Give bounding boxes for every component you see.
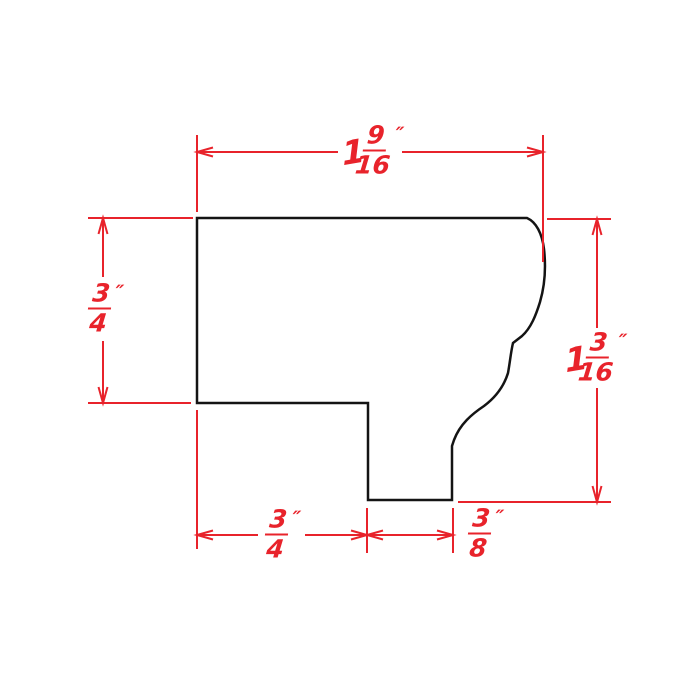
dimension-label-right-height: 1 3 16 ″ [562, 330, 626, 385]
dimension-label-top-width: 1 9 16 ″ [339, 123, 403, 178]
dimension-label-left-height: 3 4 ″ [85, 281, 123, 336]
profile-outline-path [197, 218, 545, 500]
dimension-whole-number: 1 [564, 341, 589, 377]
dimension-whole-number: 1 [341, 134, 366, 170]
fraction-numerator: 3 [88, 281, 114, 310]
molding-profile-diagram: 1 9 16 ″ 3 4 ″ 1 3 16 ″ 3 4 ″ 3 [0, 0, 700, 700]
dimension-label-bottom-left-width: 3 4 ″ [262, 507, 300, 562]
fraction-denominator: 4 [265, 536, 285, 562]
dimension-fraction: 3 4 [85, 281, 114, 336]
dimension-graphics [88, 135, 611, 553]
fraction-numerator: 9 [362, 123, 388, 152]
dimension-fraction: 3 8 [465, 506, 494, 561]
fraction-numerator: 3 [585, 330, 611, 359]
fraction-numerator: 3 [468, 506, 494, 535]
dimension-fraction: 3 4 [262, 507, 291, 562]
fraction-denominator: 8 [468, 535, 488, 561]
fraction-denominator: 4 [88, 310, 108, 336]
fraction-numerator: 3 [265, 507, 291, 536]
dim-bottom-right-width [367, 508, 453, 553]
profile-outline [197, 218, 545, 500]
dimension-label-bottom-right-width: 3 8 ″ [465, 506, 503, 561]
